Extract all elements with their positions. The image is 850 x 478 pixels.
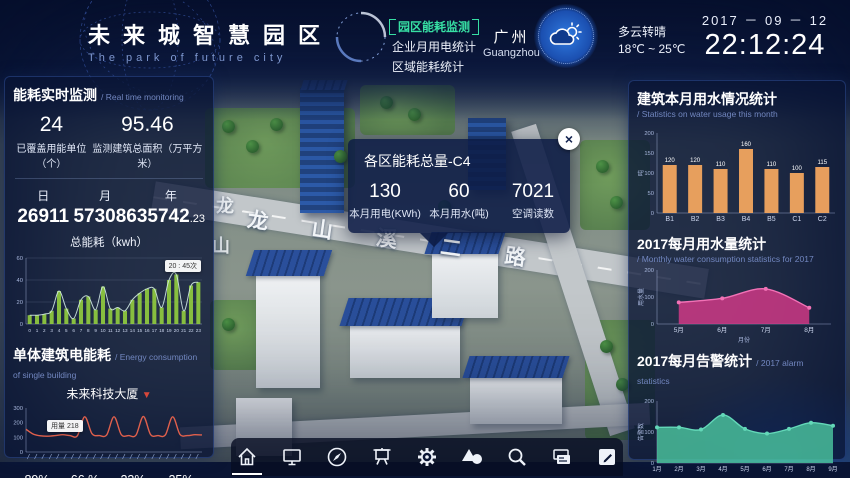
page-title: 未来城智慧园区 [88,18,333,50]
dashboard-root: 龙山溪二路 龙 山 未来城智慧园区 The park of future cit… [0,0,850,478]
svg-text:2月: 2月 [674,466,683,473]
svg-text:吨: 吨 [637,170,645,176]
svg-text:100: 100 [644,430,654,436]
svg-text:60: 60 [17,256,23,262]
month-energy-value: 573086 [73,206,136,227]
svg-text:100: 100 [644,295,654,301]
month-label: 月 [73,187,136,204]
year-energy-value: 35742 [137,206,190,227]
svg-text:100: 100 [644,171,654,177]
svg-text:9月: 9月 [828,466,837,473]
svg-text:21: 21 [181,328,187,333]
building [256,268,320,388]
svg-text:0: 0 [20,450,23,456]
year-label: 年 [137,187,205,204]
svg-text:17: 17 [152,328,158,333]
app-brand: 未来城智慧园区 The park of future city [88,18,333,64]
weather-text: 多云转晴 18℃ ~ 25℃ [618,24,685,58]
svg-text:5: 5 [65,328,68,333]
water-year-title: 2017每月用水量统计 [637,236,766,252]
svg-text:10: 10 [100,328,106,333]
water-year-chart[interactable]: 0100200用水量月份5月6月7月8月 [637,264,839,344]
svg-text:6月: 6月 [717,326,727,334]
energy-breakdown: 89%照明插座 66 %暖通空调 23%动力系统 25%特殊电耗 [13,473,205,478]
svg-text:8月: 8月 [804,326,814,334]
single-building-title: 单体建筑电能耗 [13,347,111,363]
svg-text:8: 8 [87,328,90,333]
weather-temp: 18℃ ~ 25℃ [618,41,685,58]
road-label: 山 [212,232,230,258]
svg-text:40: 40 [17,278,23,284]
svg-text:7: 7 [80,328,83,333]
gear-icon[interactable] [414,444,440,470]
popup-electricity-value: 130 [348,181,422,203]
svg-text:6: 6 [72,328,75,333]
svg-text:13: 13 [122,328,128,333]
rotating-ring-decoration [330,6,392,68]
svg-text:4月: 4月 [718,466,727,473]
city-selector[interactable]: 广州 Guangzhou [483,26,540,59]
svg-text:告警数: 告警数 [637,423,645,441]
svg-text:115: 115 [817,160,827,166]
svg-text:110: 110 [767,162,777,168]
city-name-zh: 广州 [483,26,540,47]
svg-text:B5: B5 [767,216,776,223]
search-icon[interactable] [504,444,530,470]
presentation-icon[interactable] [369,444,395,470]
building-selector-dropdown[interactable]: 未来科技大厦 ▼ [13,385,205,402]
svg-text:160: 160 [741,142,752,148]
svg-text:120: 120 [665,158,676,164]
svg-text:200: 200 [644,399,654,405]
svg-text:16: 16 [144,328,150,333]
svg-text:20: 20 [17,300,23,306]
compass-icon[interactable] [324,444,350,470]
svg-text:3月: 3月 [696,466,705,473]
svg-text:C2: C2 [818,216,827,223]
building-energy-chart[interactable]: 0100200300 [13,404,205,462]
svg-text:0: 0 [651,211,654,217]
svg-text:0: 0 [651,322,654,328]
svg-text:120: 120 [690,158,701,164]
water-statistics-panel: 建筑本月用水情况统计 / Statistics on water usage t… [628,80,846,460]
close-icon[interactable]: × [558,128,580,150]
chart-tooltip: 用量 218 [47,420,83,432]
svg-text:18: 18 [159,328,165,333]
datetime-block: 2017 － 09 － 12 22:12:24 [690,10,840,62]
city-name-en: Guangzhou [483,47,540,59]
svg-text:50: 50 [648,191,654,197]
total-energy-label: 总能耗（kwh） [13,234,205,250]
cloud-sun-icon [548,20,584,52]
svg-text:9: 9 [94,328,97,333]
svg-text:B4: B4 [742,216,751,223]
svg-text:5月: 5月 [740,466,749,473]
svg-text:用水量: 用水量 [637,288,645,306]
menu-item-region-energy[interactable]: 区域能耗统计 [392,58,476,76]
water-month-title: 建筑本月用水情况统计 [637,91,777,107]
svg-text:C1: C1 [792,216,801,223]
svg-text:B3: B3 [716,216,725,223]
svg-text:200: 200 [644,131,654,137]
home-icon[interactable] [234,444,260,470]
svg-text:B1: B1 [665,216,674,223]
svg-text:200: 200 [13,421,23,427]
svg-text:0: 0 [28,328,31,333]
current-date: 2017 － 09 － 12 [690,10,840,29]
current-time: 22:12:24 [690,29,840,62]
svg-text:5月: 5月 [674,326,684,334]
svg-text:100: 100 [792,166,803,172]
left-panel-title: 能耗实时监测 [13,87,97,103]
svg-text:4: 4 [58,328,61,333]
popup-title: 各区能耗总量-C4 [348,139,570,171]
svg-text:20: 20 [174,328,180,333]
top-menu: 园区能耗监测 企业月用电统计 区域能耗统计 [392,16,476,78]
popup-ac-value: 7021 [496,181,570,203]
page-subtitle: The park of future city [88,52,333,64]
building [350,318,460,378]
water-month-chart[interactable]: 050100150200吨B1B2B3B4B5C1C21201201101601… [637,119,839,227]
svg-text:100: 100 [13,435,23,441]
svg-text:110: 110 [716,162,726,168]
solar-roof [462,356,569,378]
menu-item-park-energy[interactable]: 园区能耗监测 [392,18,476,36]
svg-text:150: 150 [644,151,654,157]
svg-text:月份: 月份 [738,336,750,344]
building [470,372,562,424]
popup-water-value: 60 [422,181,496,203]
svg-text:6月: 6月 [762,466,771,473]
svg-text:B2: B2 [691,216,700,223]
svg-text:200: 200 [644,268,654,274]
energy-monitor-panel: 能耗实时监测/ Real time monitoring 24 已覆盖用能单位（… [4,76,214,458]
weather-condition: 多云转晴 [618,24,685,41]
svg-text:7月: 7月 [784,466,793,473]
edit-icon[interactable] [594,444,620,470]
water-year-subtitle: / Monthly water consumption statistics f… [637,254,837,264]
chart-tooltip: 20 : 45次 [165,260,201,272]
svg-text:12: 12 [115,328,121,333]
bottom-toolbar [231,438,623,476]
menu-item-monthly-electricity[interactable]: 企业月用电统计 [392,38,476,56]
weather-icon-circle [534,4,598,68]
svg-text:19: 19 [166,328,172,333]
svg-text:3: 3 [50,328,53,333]
alarm-title: 2017每月告警统计 [637,353,752,369]
covered-units-value: 24 [13,113,90,137]
svg-text:11: 11 [108,328,113,333]
cards-icon[interactable] [549,444,575,470]
svg-text:2: 2 [43,328,46,333]
monitored-area-label: 监测建筑总面积（万平方米） [90,140,205,170]
monitor-icon[interactable] [279,444,305,470]
solar-roof [246,250,332,276]
svg-text:7月: 7月 [761,326,771,334]
svg-text:1: 1 [36,328,39,333]
svg-text:300: 300 [13,406,23,412]
left-panel-subtitle: / Real time monitoring [101,92,184,102]
day-energy-value: 26911 [17,206,69,227]
day-label: 日 [13,187,73,204]
shapes-icon[interactable] [459,444,485,470]
zone-energy-popup: 各区能耗总量-C4 130本月用电(KWh) 60本月用水(吨) 7021空调读… [348,139,570,233]
covered-units-label: 已覆盖用能单位（个） [13,140,90,170]
svg-text:14: 14 [130,328,136,333]
alarm-chart[interactable]: 0100200告警数1月2月3月4月5月6月7月8月9月 [637,393,839,475]
svg-text:22: 22 [188,328,194,333]
svg-text:8月: 8月 [806,466,815,473]
chevron-down-icon: ▼ [142,390,152,401]
monitored-area-value: 95.46 [90,113,205,137]
road-label: 龙 [216,192,234,218]
svg-text:0: 0 [20,322,23,328]
svg-text:15: 15 [137,328,143,333]
water-month-subtitle: / Statistics on water usage this month [637,109,837,119]
svg-text:23: 23 [196,328,202,333]
svg-text:1月: 1月 [652,466,661,473]
